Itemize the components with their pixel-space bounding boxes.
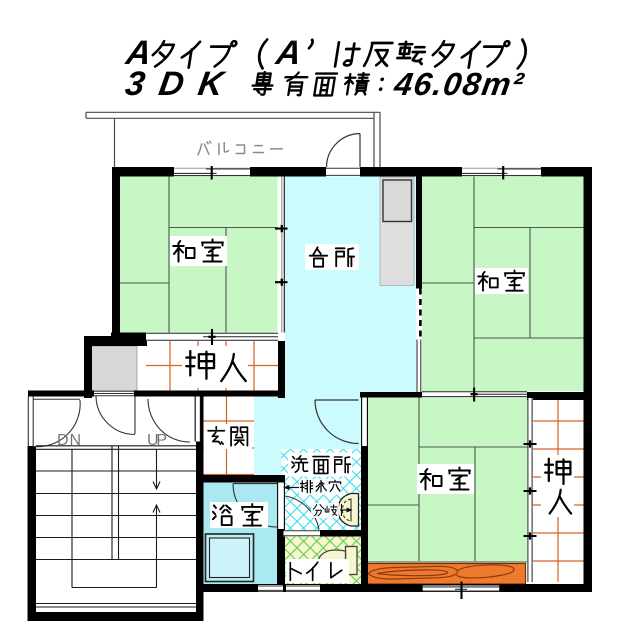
svg-text:DN: DN xyxy=(57,432,81,449)
svg-text:3DK: 3DK xyxy=(123,65,241,103)
svg-text:UP: UP xyxy=(147,432,167,449)
svg-text:46.08m²: 46.08m² xyxy=(391,66,527,102)
